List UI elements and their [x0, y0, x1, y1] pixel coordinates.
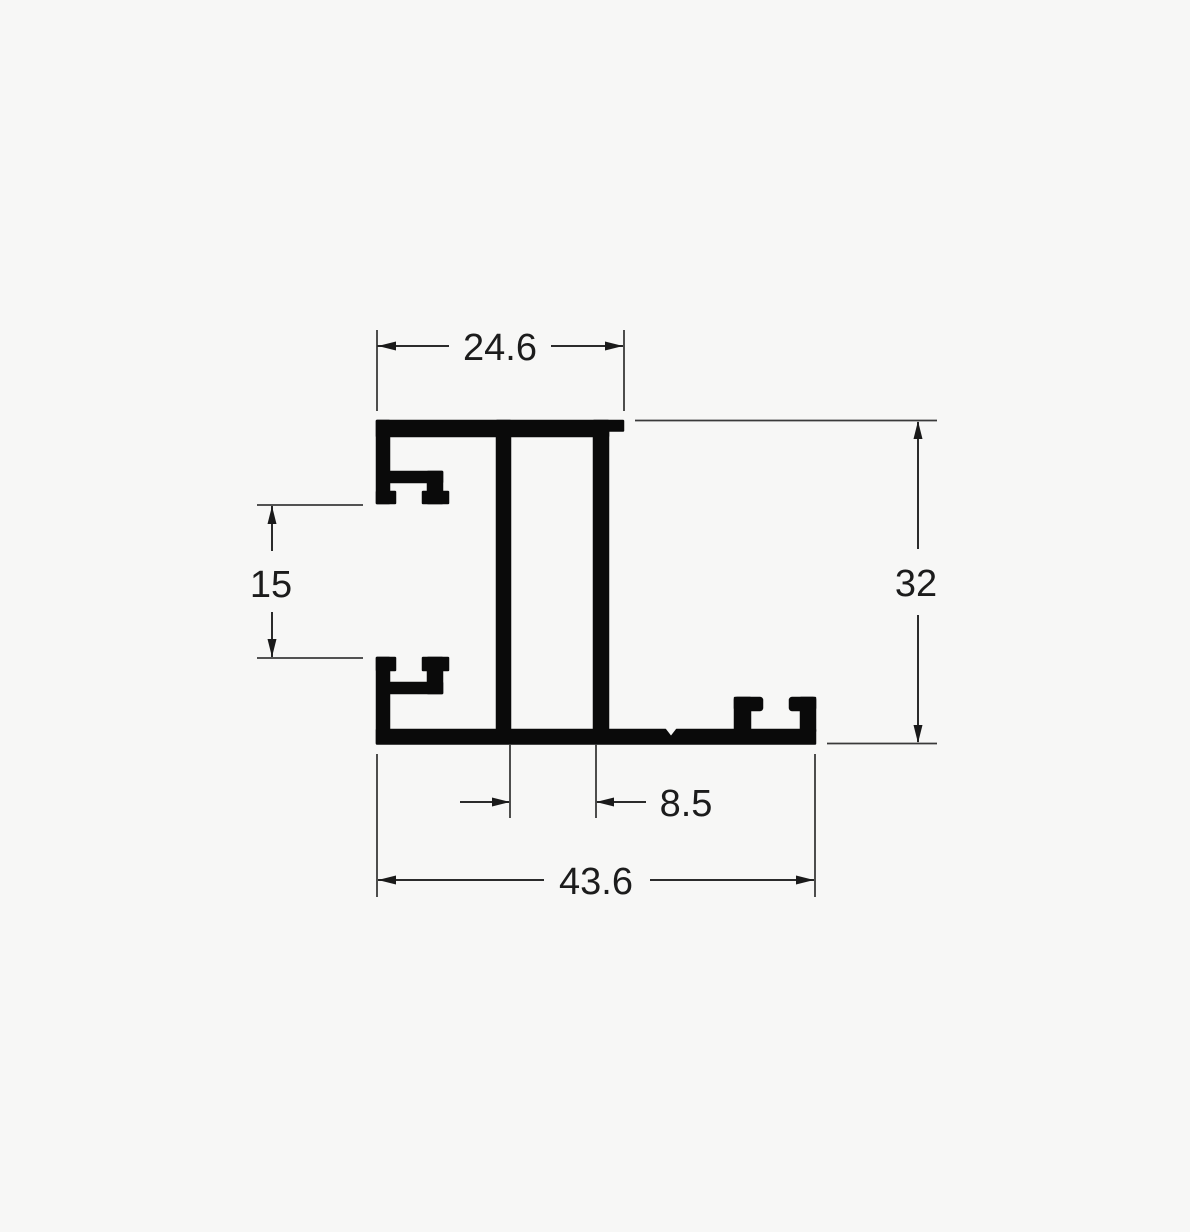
arrowhead-left-icon — [378, 876, 396, 885]
arrowhead-down-icon — [268, 639, 277, 657]
arrowhead-left-icon — [596, 798, 614, 807]
dim-label-groove-gap: 15 — [250, 564, 292, 606]
arrowhead-up-icon — [268, 506, 277, 524]
dimension-web-gap: 8.5 — [460, 744, 712, 825]
arrowhead-right-icon — [492, 798, 510, 807]
arrowhead-down-icon — [914, 725, 923, 743]
technical-drawing: 24.6 15 32 — [0, 0, 1190, 1232]
arrowhead-right-icon — [605, 342, 623, 351]
dimension-top-width: 24.6 — [377, 327, 624, 411]
dim-label-total-width: 43.6 — [559, 861, 633, 903]
profile-right-clip-channel — [735, 698, 815, 731]
arrowhead-right-icon — [796, 876, 814, 885]
dim-label-top-width: 24.6 — [463, 327, 537, 369]
profile-web-left — [497, 421, 510, 743]
profile-cross-section — [377, 421, 815, 744]
dim-label-overall-height: 32 — [895, 563, 937, 605]
dim-label-web-gap: 8.5 — [660, 783, 713, 825]
profile-web-right — [594, 421, 608, 743]
arrowhead-left-icon — [378, 342, 396, 351]
dimension-overall-height: 32 — [635, 421, 937, 744]
drawing-canvas: 24.6 15 32 — [0, 0, 1190, 1232]
dimension-groove-gap: 15 — [250, 505, 363, 658]
arrowhead-up-icon — [914, 421, 923, 439]
